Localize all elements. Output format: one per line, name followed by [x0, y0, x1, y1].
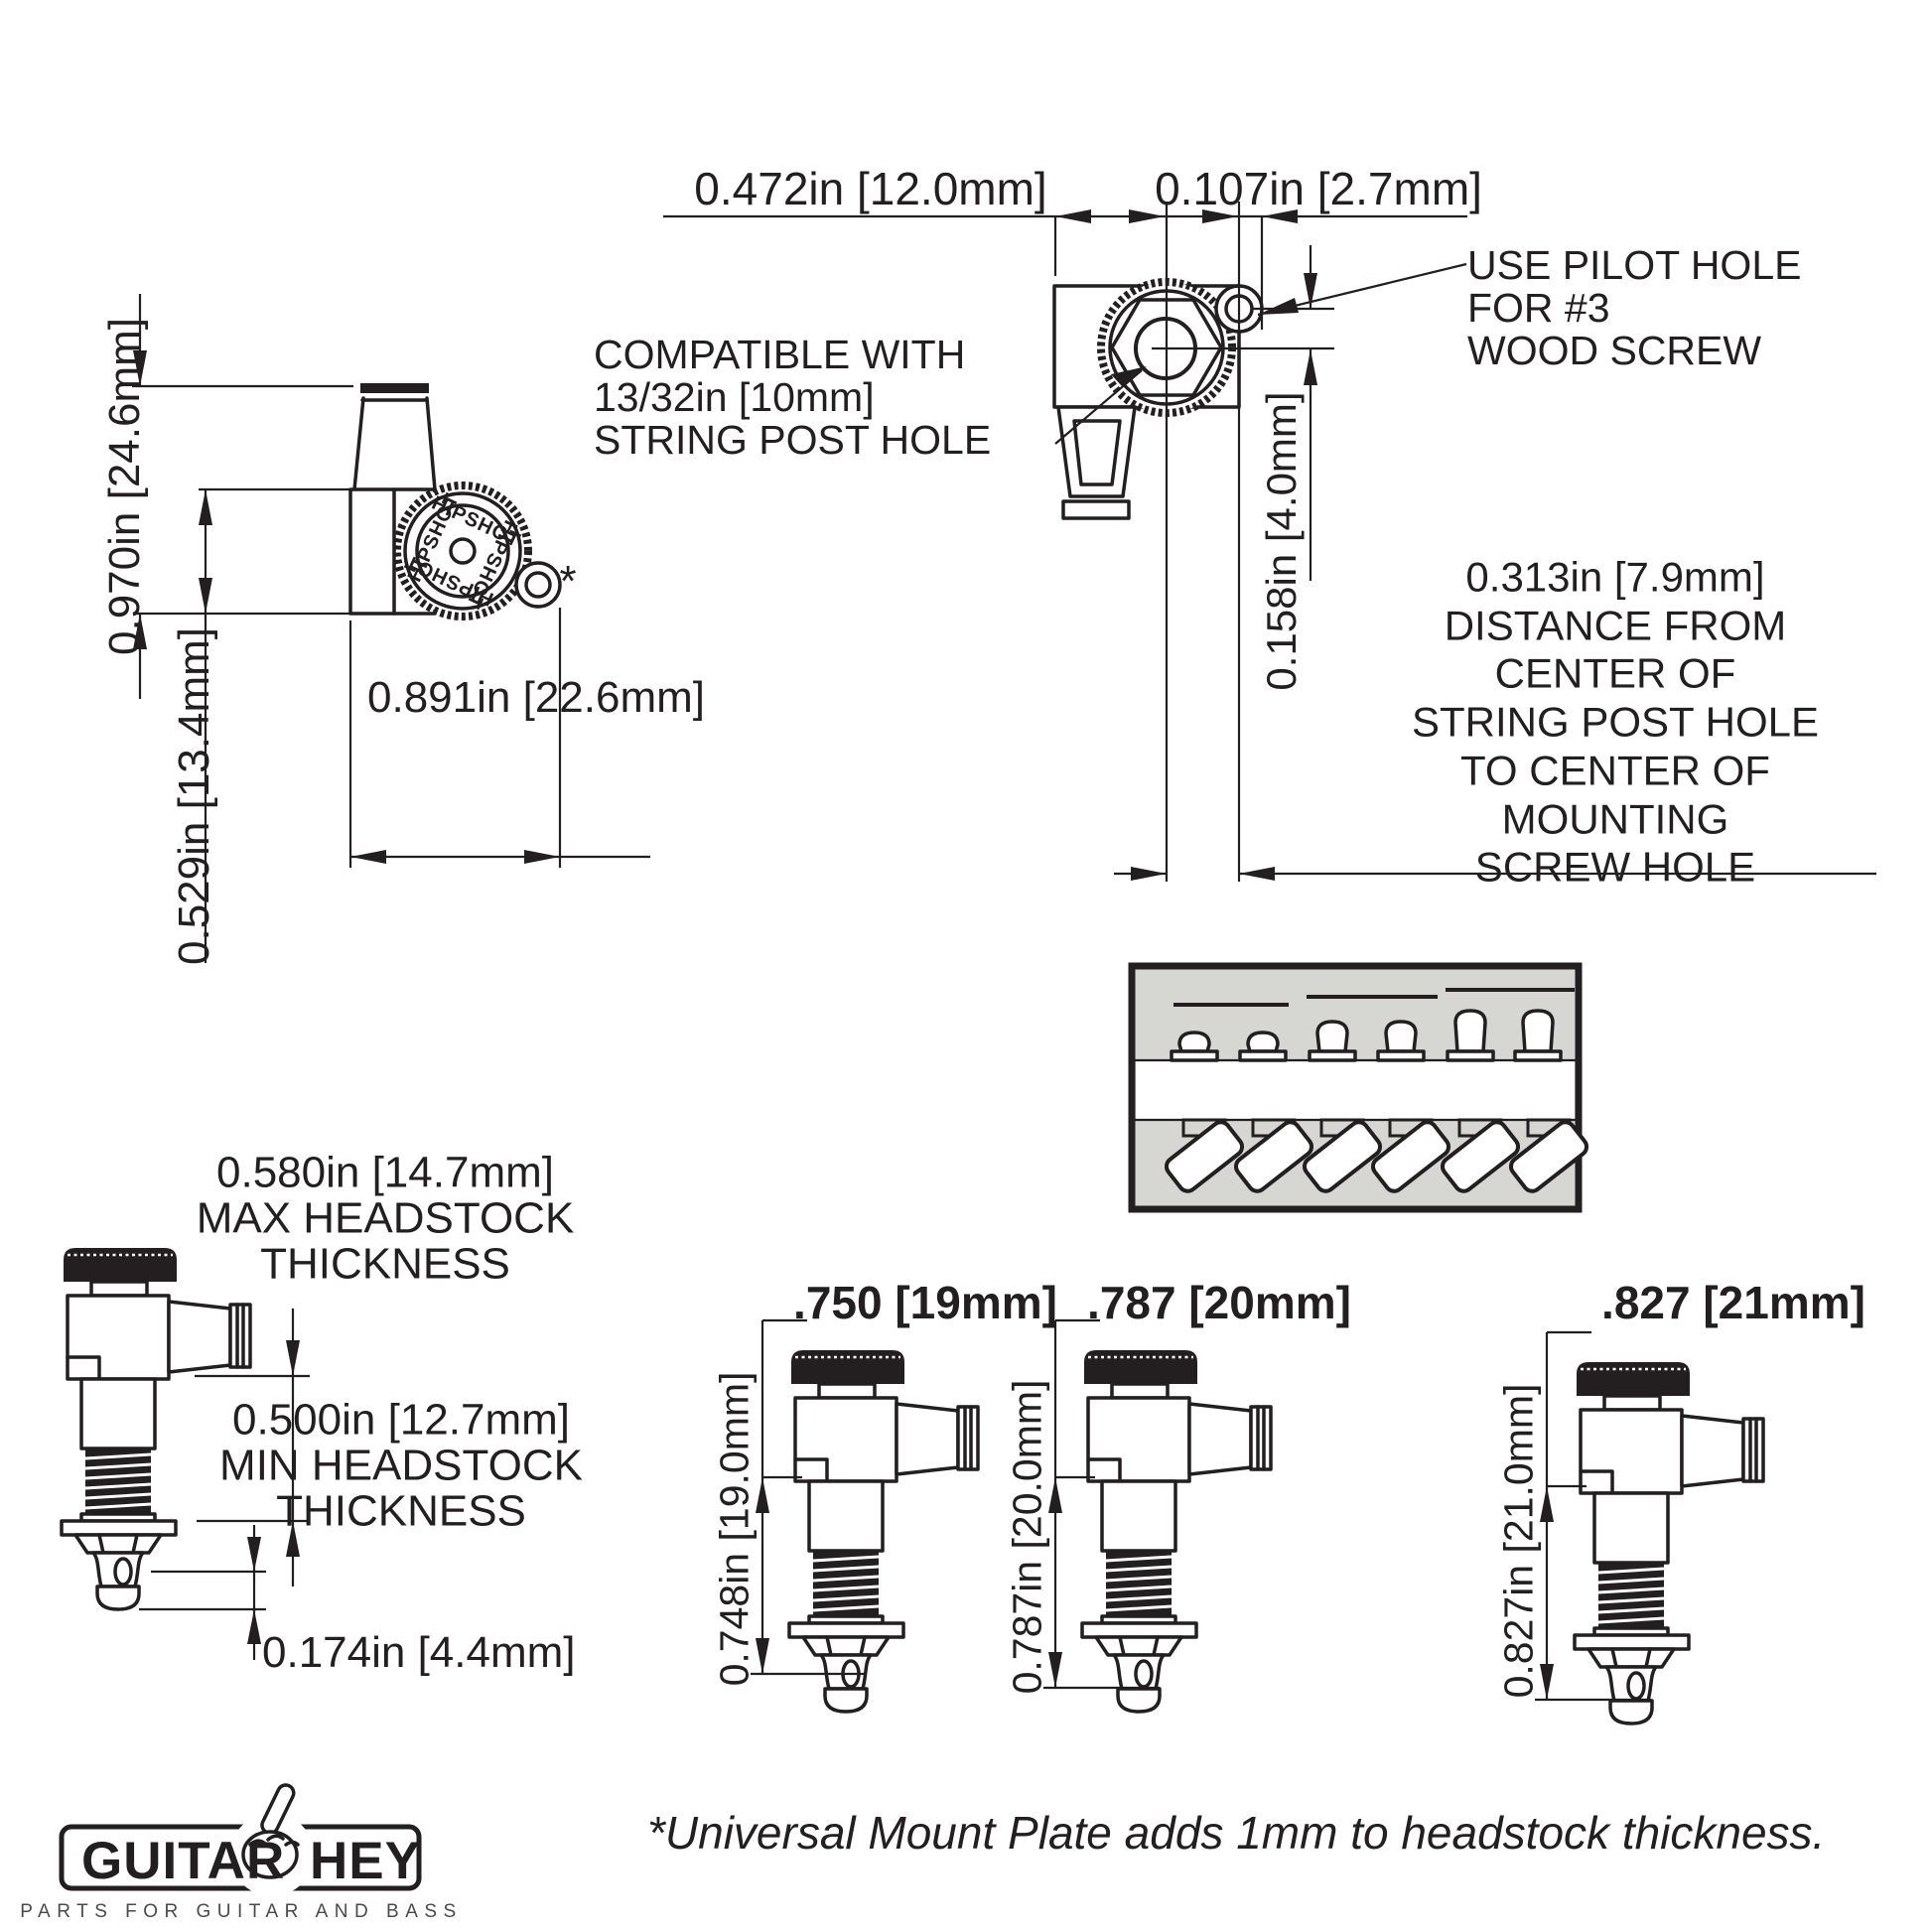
footnote-marker: * — [559, 559, 576, 605]
dim-tip: 0.174in [4.4mm] — [262, 1630, 576, 1676]
variant-label-787: .787 [20mm] — [1087, 1279, 1351, 1326]
variant-dim-750: 0.748in [19.0mm] — [713, 1372, 756, 1687]
universal-mount-note: *Universal Mount Plate adds 1mm to heads… — [647, 1809, 1825, 1857]
variant-750 — [789, 1350, 978, 1712]
dim-side-width: 0.891in [22.6mm] — [367, 675, 705, 721]
brand-name-left: GUITAR — [81, 1834, 285, 1889]
dim-side-height: 0.970in [24.6mm] — [102, 318, 148, 655]
variant-827 — [1575, 1362, 1763, 1724]
brand-tagline: PARTS FOR GUITAR AND BASS — [20, 1902, 462, 1922]
dim-tab-offset: 0.107in [2.7mm] — [1155, 165, 1482, 212]
dim-side-body: 0.529in [13.4mm] — [172, 627, 217, 965]
variant-label-750: .750 [19mm] — [793, 1279, 1057, 1326]
variant-dim-787: 0.787in [20.0mm] — [1006, 1380, 1048, 1695]
variant-dim-827: 0.827in [21.0mm] — [1497, 1384, 1540, 1699]
dim-screw-vertical: 0.158in [4.0mm] — [1260, 391, 1304, 690]
dim-top-width: 0.472in [12.0mm] — [694, 165, 1046, 212]
variant-787 — [1082, 1350, 1271, 1712]
min-thickness-note: 0.500in [12.7mm] MIN HEADSTOCK THICKNESS — [219, 1398, 583, 1536]
spec-sheet: HIPSHOT HIPSHOT HIPSHOT HIPSHOT — [0, 0, 1932, 1932]
max-thickness-note: 0.580in [14.7mm] MAX HEADSTOCK THICKNESS — [197, 1151, 575, 1289]
compat-note: COMPATIBLE WITH 13/32in [10mm] STRING PO… — [594, 334, 991, 462]
pilot-note: USE PILOT HOLE FOR #3 WOOD SCREW — [1467, 244, 1801, 372]
brand-name-right: HEY — [310, 1834, 421, 1889]
headstock-inset — [1132, 966, 1590, 1209]
distance-note: 0.313in [7.9mm] DISTANCE FROM CENTER OF … — [1412, 553, 1819, 892]
variant-label-827: .827 [21mm] — [1601, 1279, 1865, 1326]
